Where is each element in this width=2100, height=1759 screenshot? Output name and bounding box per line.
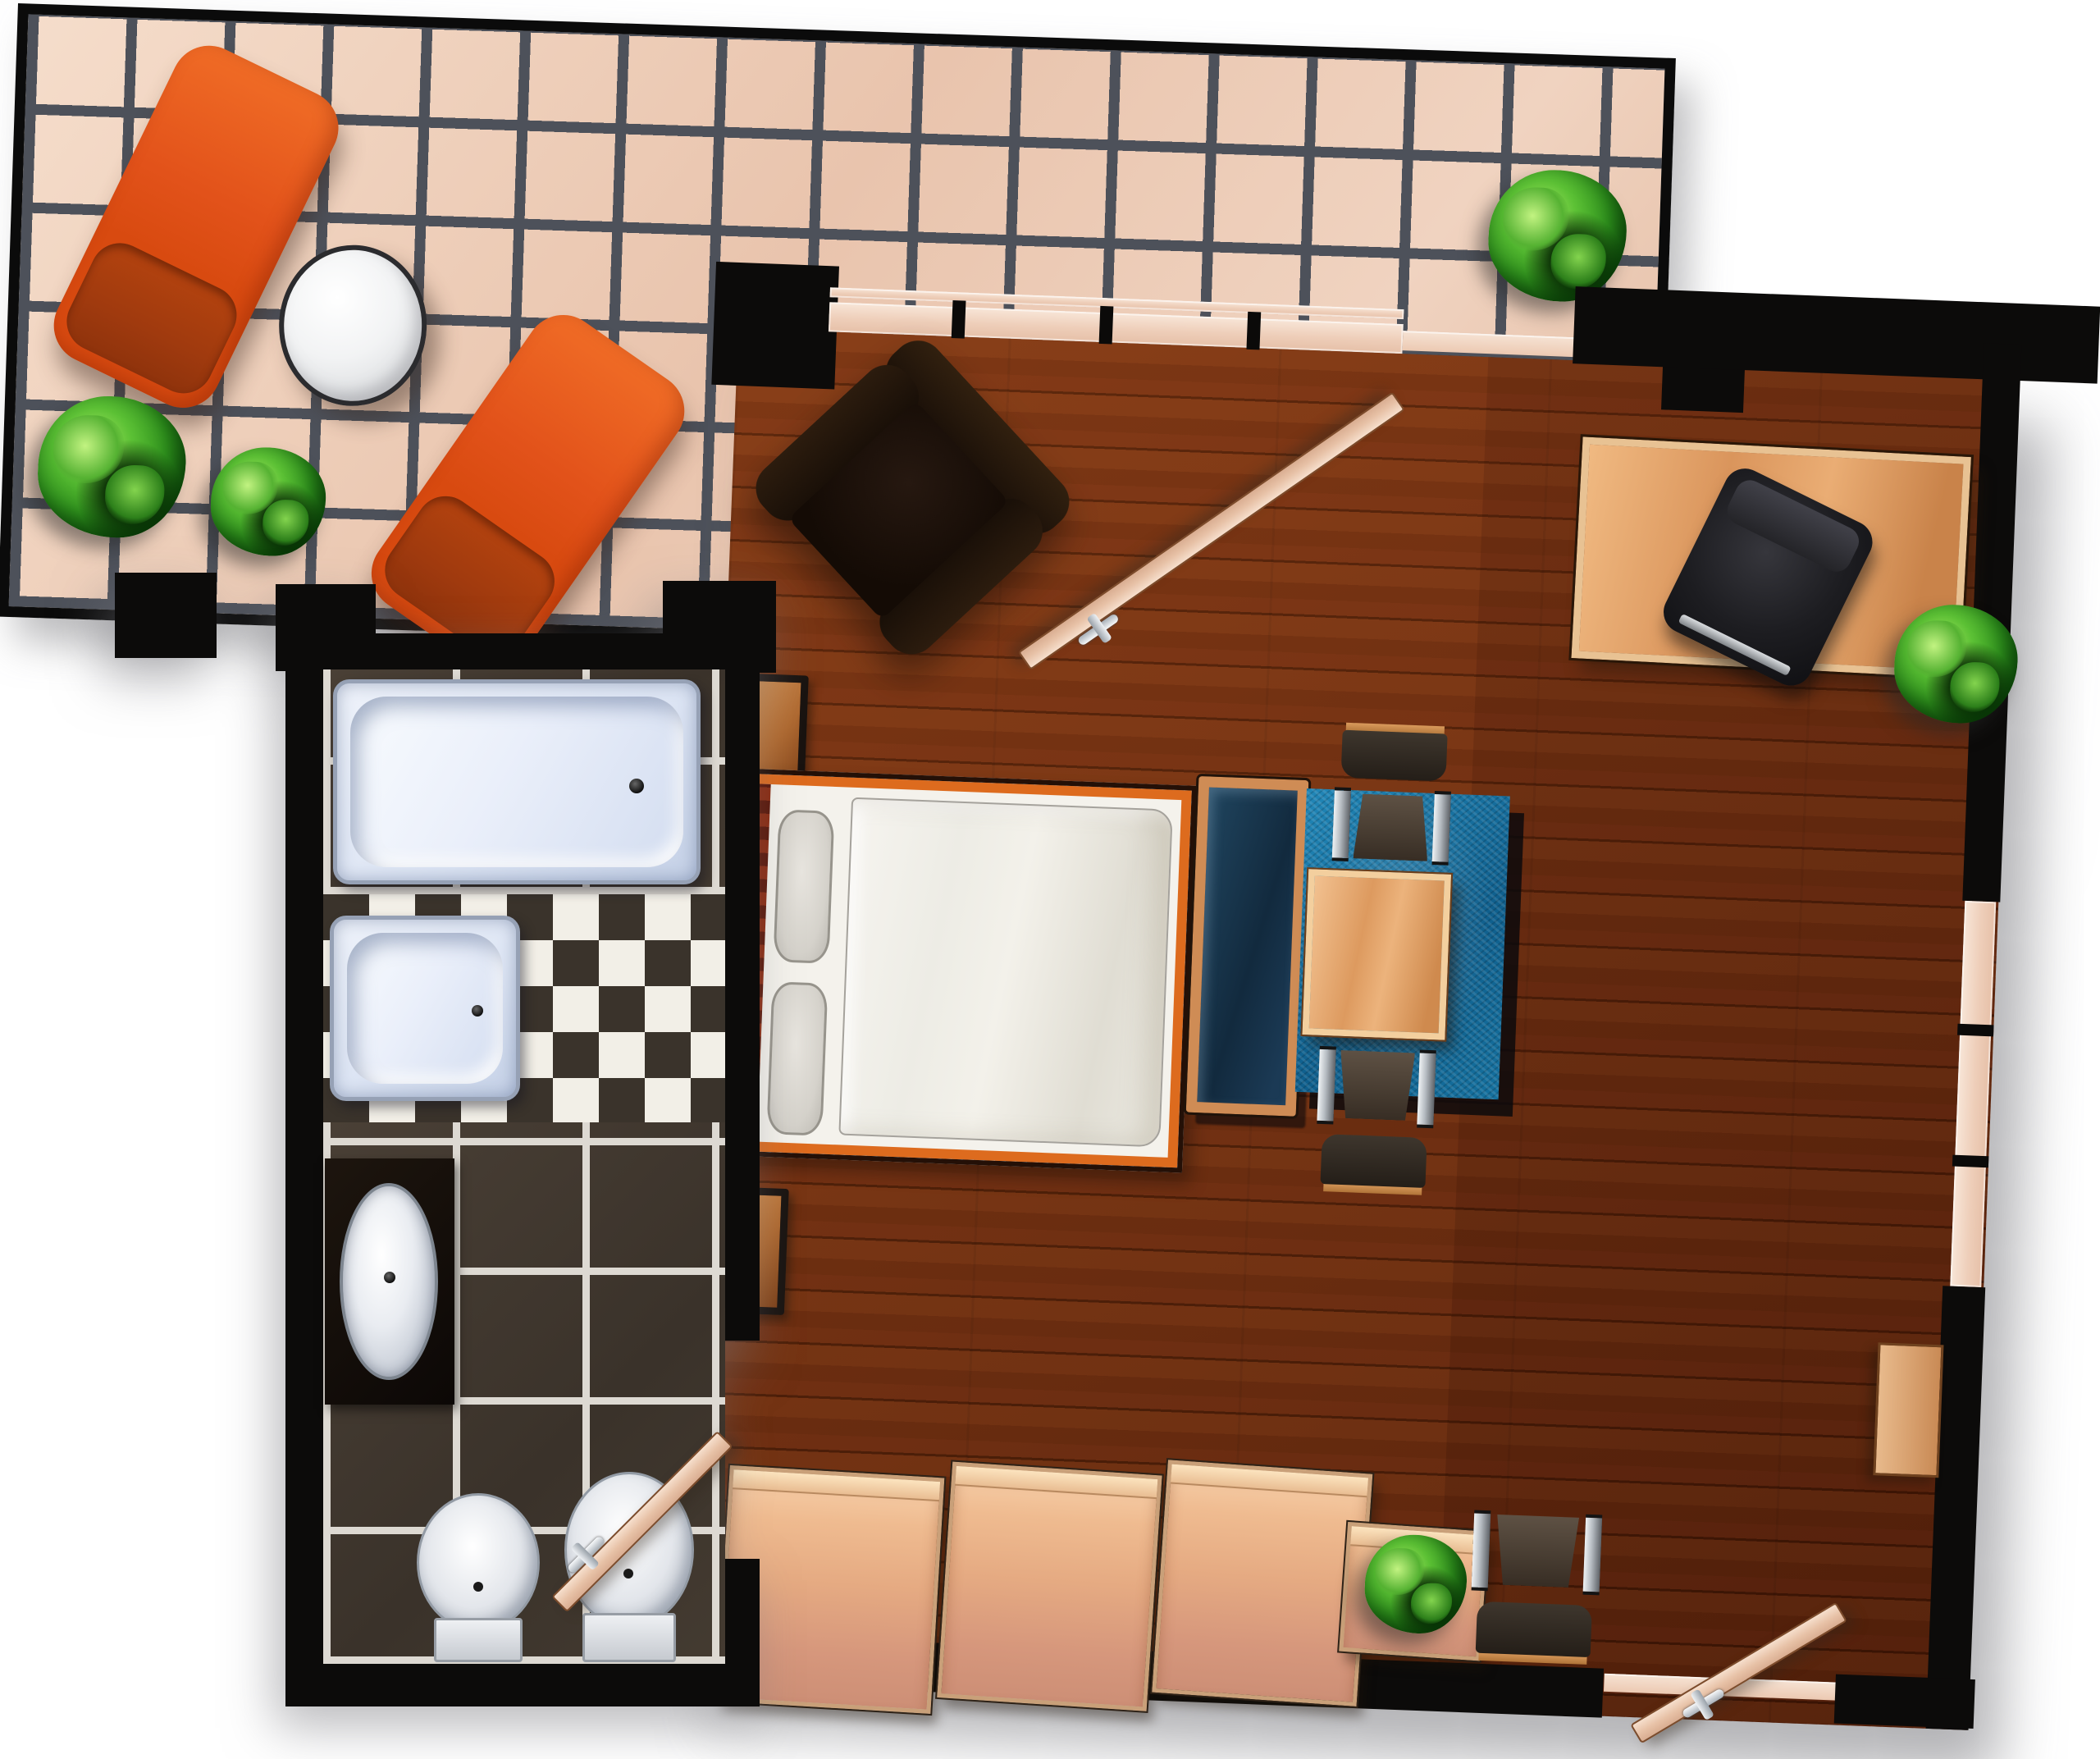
window-mullion bbox=[1099, 306, 1114, 345]
room-bathroom bbox=[285, 633, 760, 1706]
toilet bbox=[417, 1493, 540, 1662]
chair-seat bbox=[1338, 1050, 1415, 1121]
window-mullion bbox=[1246, 312, 1261, 350]
room-living bbox=[687, 328, 2019, 1730]
shrub-terrace-east bbox=[1486, 168, 1628, 304]
bed-pillow-bottom bbox=[766, 981, 828, 1135]
shower-drain bbox=[472, 1005, 483, 1017]
chair-seat bbox=[1353, 793, 1430, 861]
bath-wall-west bbox=[285, 633, 323, 1706]
round-side-table bbox=[276, 243, 429, 409]
dining-chair-north bbox=[1331, 722, 1453, 867]
toilet-flush-dot bbox=[473, 1582, 483, 1592]
bath-wall-corner-outer bbox=[115, 573, 217, 658]
chair-rail-left bbox=[1317, 1049, 1335, 1121]
window-mullion bbox=[1952, 1155, 1989, 1168]
wardrobe-3 bbox=[1152, 1460, 1372, 1706]
bathtub bbox=[333, 679, 701, 884]
wall-south-right bbox=[1834, 1674, 1975, 1729]
wall-shelf bbox=[1873, 1342, 1943, 1478]
chair-seat bbox=[1495, 1515, 1579, 1588]
window-mullion bbox=[1957, 1024, 1994, 1037]
floor-plan-canvas bbox=[0, 0, 2100, 1759]
shrub-small bbox=[209, 445, 327, 558]
bidet-drain-dot bbox=[623, 1569, 633, 1579]
shrub-large bbox=[36, 394, 189, 540]
chair-rail-left bbox=[1472, 1514, 1491, 1588]
window-mullion bbox=[952, 300, 966, 339]
wardrobe-2 bbox=[937, 1462, 1162, 1711]
bath-wall-east-upper bbox=[725, 633, 760, 1341]
bed-bench bbox=[1186, 776, 1309, 1117]
bed-pillow-top bbox=[773, 809, 834, 963]
wall-corner-northwest bbox=[711, 262, 839, 390]
dining-table bbox=[1302, 869, 1451, 1040]
bathtub-drain bbox=[629, 779, 644, 793]
bed-duvet bbox=[838, 797, 1173, 1148]
chair-rail-left bbox=[1332, 790, 1351, 858]
chair-backrest bbox=[1341, 730, 1448, 782]
chair-rail-right bbox=[1432, 794, 1451, 862]
chair-rail-right bbox=[1583, 1518, 1602, 1592]
side-chair-south bbox=[1468, 1508, 1602, 1665]
toilet-bowl bbox=[417, 1493, 540, 1632]
toilet-tank bbox=[434, 1618, 523, 1662]
double-bed bbox=[729, 769, 1197, 1173]
chair-backrest bbox=[1475, 1601, 1592, 1657]
lounger-footrest bbox=[57, 233, 247, 404]
bath-wall-south bbox=[285, 1664, 760, 1706]
chair-backrest bbox=[1321, 1134, 1427, 1188]
bath-wall-north bbox=[285, 633, 760, 669]
shower-tray bbox=[330, 916, 520, 1101]
bath-wall-east-lower bbox=[725, 1559, 760, 1706]
chair-rail-right bbox=[1417, 1053, 1436, 1125]
washbasin-drain bbox=[384, 1272, 395, 1283]
bidet-tank bbox=[582, 1613, 676, 1662]
dining-chair-south bbox=[1314, 1044, 1436, 1195]
washbasin bbox=[340, 1183, 438, 1380]
